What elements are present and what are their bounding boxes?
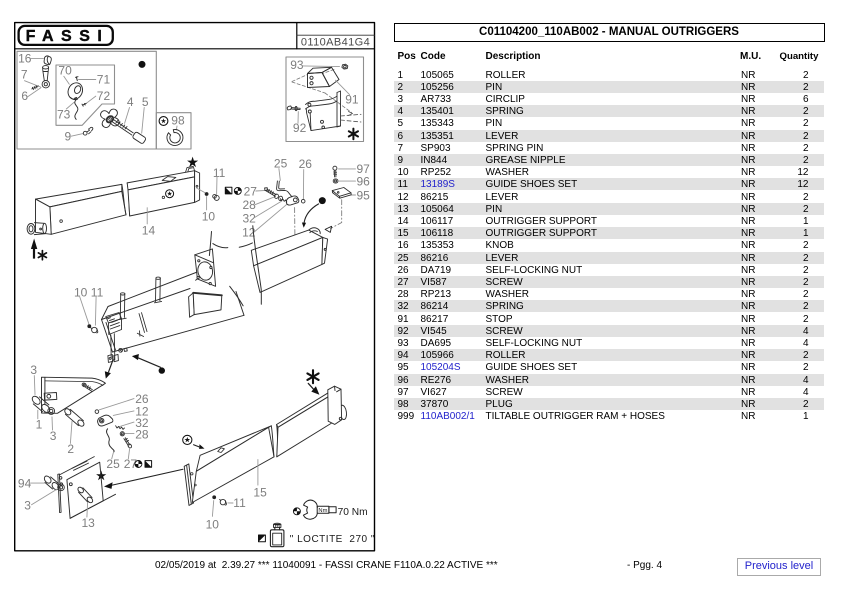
svg-text:9: 9 xyxy=(65,129,72,143)
svg-text:Nm: Nm xyxy=(318,508,327,514)
svg-text:FASSI: FASSI xyxy=(26,28,110,45)
svg-text:93: 93 xyxy=(290,58,304,72)
svg-text:3: 3 xyxy=(50,429,57,443)
svg-text:27: 27 xyxy=(244,184,258,198)
svg-text:11: 11 xyxy=(213,166,226,180)
svg-text:2: 2 xyxy=(67,442,74,456)
svg-text:25: 25 xyxy=(274,156,288,170)
svg-text:72: 72 xyxy=(97,89,111,103)
svg-text:4: 4 xyxy=(127,95,134,109)
svg-text:10: 10 xyxy=(202,210,216,224)
svg-text:11: 11 xyxy=(233,496,246,510)
svg-text:98: 98 xyxy=(171,113,185,127)
svg-text:92: 92 xyxy=(293,121,307,135)
svg-text:70: 70 xyxy=(58,64,72,78)
svg-text:" LOCTITE 270 ": " LOCTITE 270 " xyxy=(290,534,375,545)
svg-text:16: 16 xyxy=(18,52,32,66)
svg-text:26: 26 xyxy=(299,157,313,171)
svg-text:15: 15 xyxy=(253,485,267,499)
svg-text:10: 10 xyxy=(206,517,220,531)
svg-text:70 Nm: 70 Nm xyxy=(338,507,368,518)
svg-text:3: 3 xyxy=(24,499,31,513)
svg-text:1: 1 xyxy=(36,418,43,432)
svg-text:91: 91 xyxy=(345,93,359,107)
svg-text:25: 25 xyxy=(106,457,120,471)
svg-text:94: 94 xyxy=(18,477,32,491)
svg-text:11: 11 xyxy=(91,285,104,299)
svg-text:13: 13 xyxy=(82,516,96,530)
svg-text:95: 95 xyxy=(357,189,371,203)
svg-text:96: 96 xyxy=(357,174,371,188)
svg-text:14: 14 xyxy=(142,223,156,237)
svg-text:28: 28 xyxy=(243,198,257,212)
svg-text:0110AB41G4: 0110AB41G4 xyxy=(301,36,370,48)
svg-text:28: 28 xyxy=(135,428,149,442)
svg-text:6: 6 xyxy=(21,89,28,103)
svg-text:32: 32 xyxy=(243,211,257,225)
svg-text:7: 7 xyxy=(21,68,28,82)
svg-text:3: 3 xyxy=(30,363,37,377)
svg-text:5: 5 xyxy=(142,95,149,109)
svg-text:10: 10 xyxy=(74,285,88,299)
svg-text:71: 71 xyxy=(97,72,111,86)
svg-text:73: 73 xyxy=(57,108,71,122)
